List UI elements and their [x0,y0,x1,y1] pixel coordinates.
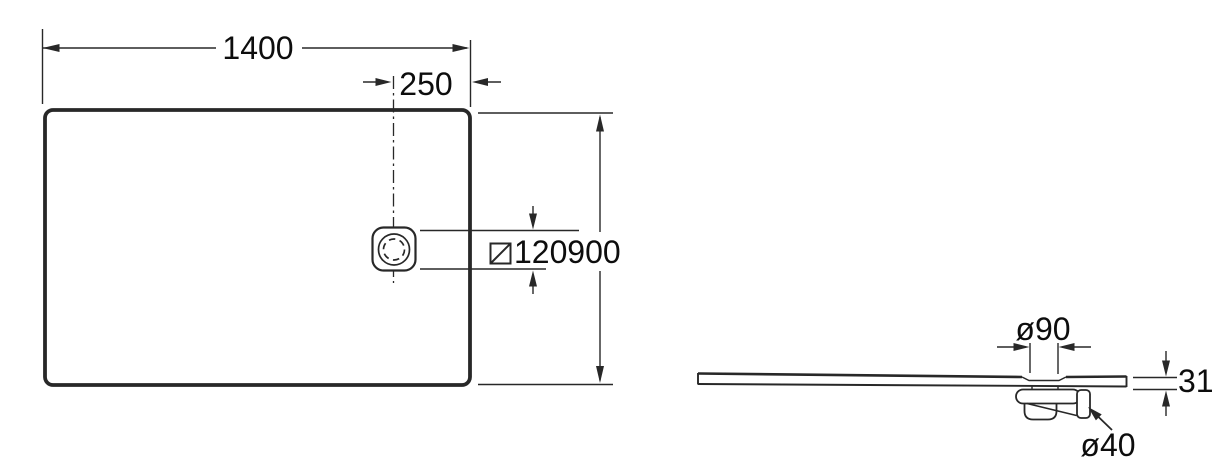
dim-drain-offset-label: 250 [399,66,452,102]
arrow-up-icon [596,115,604,132]
drain-cover-recess [1022,377,1066,381]
dim-width-label: 1400 [222,30,293,66]
square-symbol-icon [491,244,511,264]
dim-drain-diameter: ø90 [997,311,1091,374]
arrow-down-icon [596,366,604,383]
trap-tube [1016,390,1080,404]
technical-drawing-canvas: 1400 250 900 [0,0,1227,472]
arrow-down-icon [1162,361,1170,377]
dim-thickness-label: 31 [1178,363,1214,399]
arrow-up-icon [1162,391,1170,407]
drain-trap [1016,387,1090,420]
dim-drain-square-label: 120 [514,234,567,270]
tray-profile [698,373,1127,387]
arrow-left-icon [43,44,60,52]
dim-drain-diameter-label: ø90 [1015,311,1070,347]
arrow-right-icon [376,78,392,86]
dim-outlet-diameter-label: ø40 [1080,427,1135,463]
dim-depth-label: 900 [567,234,620,270]
side-view: ø90 31 ø40 [698,311,1214,463]
drawing-stage: 1400 250 900 [0,0,1227,472]
drain-plan [373,228,416,271]
top-view: 1400 250 900 [43,29,621,385]
trap-outlet-cap [1077,390,1090,418]
arrow-up-icon [529,271,537,287]
dim-thickness: 31 [1133,351,1214,416]
arrow-down-icon [529,214,537,230]
arrow-right-icon [453,44,470,52]
dim-drain-offset: 250 [363,66,501,102]
